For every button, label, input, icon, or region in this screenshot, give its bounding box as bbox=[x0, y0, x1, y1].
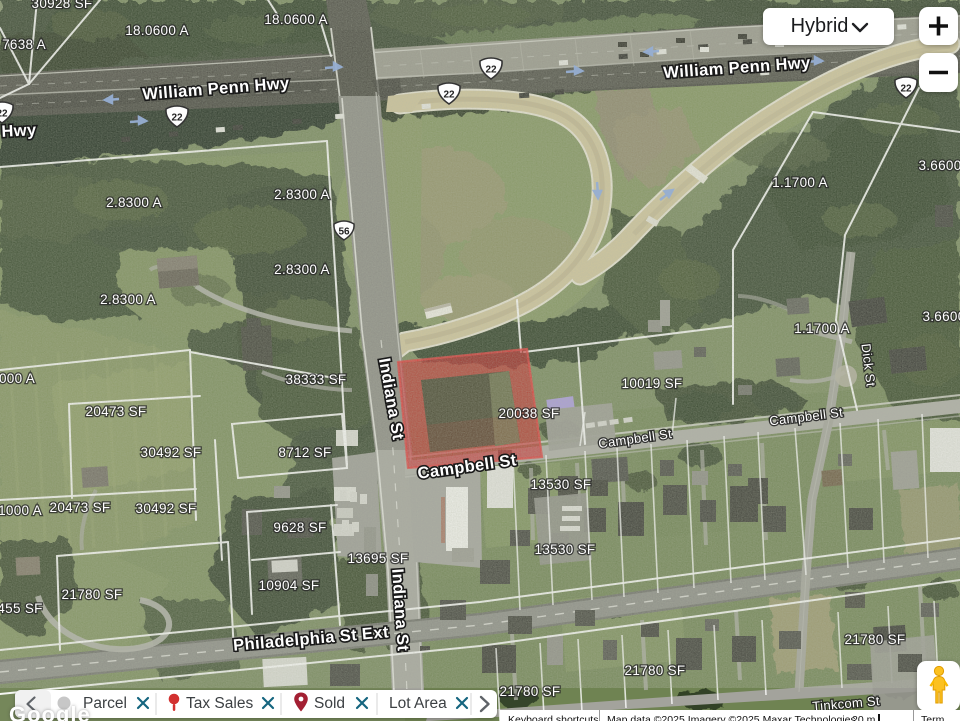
svg-text:22: 22 bbox=[443, 90, 455, 101]
svg-text:Hwy: Hwy bbox=[1, 121, 37, 141]
svg-text:1.1700 A: 1.1700 A bbox=[794, 321, 850, 336]
svg-text:30928 SF: 30928 SF bbox=[32, 0, 93, 11]
svg-text:8712 SF: 8712 SF bbox=[278, 445, 331, 460]
svg-text:3.6600: 3.6600 bbox=[918, 158, 960, 173]
svg-text:20473 SF: 20473 SF bbox=[86, 404, 147, 419]
svg-text:13530 SF: 13530 SF bbox=[531, 477, 592, 492]
svg-text:000 A: 000 A bbox=[0, 371, 35, 386]
svg-text:21780 SF: 21780 SF bbox=[62, 587, 123, 602]
svg-text:2.8300 A: 2.8300 A bbox=[106, 195, 162, 210]
svg-text:18.0600 A: 18.0600 A bbox=[264, 12, 328, 27]
svg-text:13695 SF: 13695 SF bbox=[348, 551, 409, 566]
svg-text:22: 22 bbox=[485, 65, 497, 76]
svg-text:56: 56 bbox=[338, 227, 350, 238]
svg-text:21780 SF: 21780 SF bbox=[500, 684, 561, 699]
svg-text:1.1700 A: 1.1700 A bbox=[772, 175, 828, 190]
svg-text:10904 SF: 10904 SF bbox=[259, 578, 320, 593]
svg-text:38333 SF: 38333 SF bbox=[286, 372, 347, 387]
svg-text:9628 SF: 9628 SF bbox=[273, 520, 326, 535]
svg-text:21780 SF: 21780 SF bbox=[625, 663, 686, 678]
svg-text:13530 SF: 13530 SF bbox=[535, 542, 596, 557]
svg-text:22: 22 bbox=[0, 109, 8, 120]
svg-text:18.0600 A: 18.0600 A bbox=[125, 23, 189, 38]
svg-text:2.8300 A: 2.8300 A bbox=[274, 262, 330, 277]
svg-text:20473 SF: 20473 SF bbox=[50, 500, 111, 515]
svg-text:21780 SF: 21780 SF bbox=[845, 632, 906, 647]
svg-text:10019 SF: 10019 SF bbox=[622, 376, 683, 391]
svg-text:1000 A: 1000 A bbox=[0, 503, 42, 518]
svg-text:2.8300 A: 2.8300 A bbox=[274, 187, 330, 202]
svg-text:20038 SF: 20038 SF bbox=[499, 406, 560, 421]
svg-text:455 SF: 455 SF bbox=[0, 601, 43, 616]
svg-text:2.8300 A: 2.8300 A bbox=[100, 292, 156, 307]
svg-text:30492 SF: 30492 SF bbox=[141, 445, 202, 460]
svg-text:22: 22 bbox=[171, 113, 183, 124]
svg-text:30492 SF: 30492 SF bbox=[136, 501, 197, 516]
svg-text:3.6600: 3.6600 bbox=[922, 309, 960, 324]
svg-text:7638 A: 7638 A bbox=[2, 37, 46, 52]
svg-text:22: 22 bbox=[900, 84, 912, 95]
